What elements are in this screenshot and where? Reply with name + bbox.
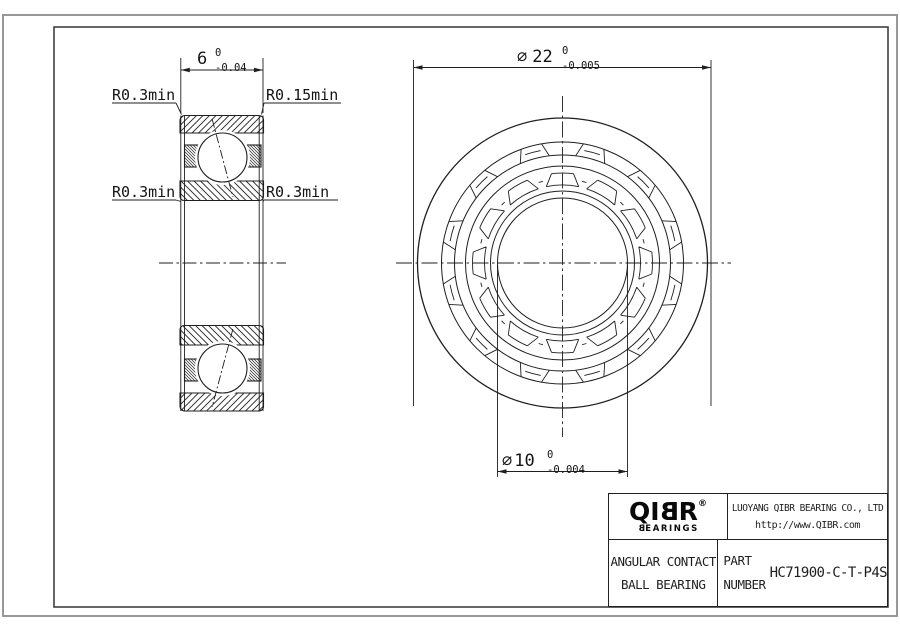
company-name: LUOYANG QIBR BEARING CO., LTD [732,500,883,517]
radius-label-top-right: R0.15min [266,86,338,104]
od-dim-upper-tol: 0 [562,45,568,57]
dim-arrow-right [254,68,263,73]
width-dim-value: 6 [197,49,207,69]
company-cell: LUOYANG QIBR BEARING CO., LTD http://www… [728,494,887,539]
company-website: http://www.QIBR.com [755,518,860,533]
bore-dim-value: ⌀10 [502,451,535,471]
width-dim-upper-tol: 0 [215,47,221,59]
bore-dim-lower-tol: -0.004 [547,464,585,476]
product-name-line2: BALL BEARING [621,573,705,596]
logo-subtitle: BEARINGS [637,525,699,534]
radius-label-top-left: R0.3min [112,86,175,104]
logo-cell: QIBR® BEARINGS [609,494,728,539]
radius-label-mid-right: R0.3min [266,183,329,201]
section-view [112,58,341,411]
registered-mark-icon: ® [698,499,707,509]
bore-dim-upper-tol: 0 [547,449,553,461]
front-view [396,60,731,477]
title-block-top-row: QIBR® BEARINGS LUOYANG QIBR BEARING CO.,… [609,494,887,540]
part-number-label: PART NUMBER [723,549,765,598]
part-number-value: HC71900-C-T-P4S [770,565,887,581]
company-logo: QIBR® [629,499,707,524]
od-dim-lower-tol: -0.005 [562,60,600,72]
drawing-sheet: 6 0 -0.04 ⌀22 0 -0.005 ⌀10 0 -0.004 R0.3… [0,0,900,636]
part-number-cell: PART NUMBER HC71900-C-T-P4S [718,540,887,606]
width-dim-lower-tol: -0.04 [215,62,247,74]
diameter-symbol: ⌀ [502,451,512,471]
dim-arrow-left [181,68,190,73]
diameter-symbol: ⌀ [517,47,527,67]
title-block: QIBR® BEARINGS LUOYANG QIBR BEARING CO.,… [608,493,888,607]
product-name-line1: ANGULAR CONTACT [611,550,716,573]
od-dim-value: ⌀22 [517,47,553,67]
title-block-bottom-row: ANGULAR CONTACT BALL BEARING PART NUMBER… [609,540,887,606]
radius-label-mid-left: R0.3min [112,183,175,201]
product-cell: ANGULAR CONTACT BALL BEARING [609,540,718,606]
